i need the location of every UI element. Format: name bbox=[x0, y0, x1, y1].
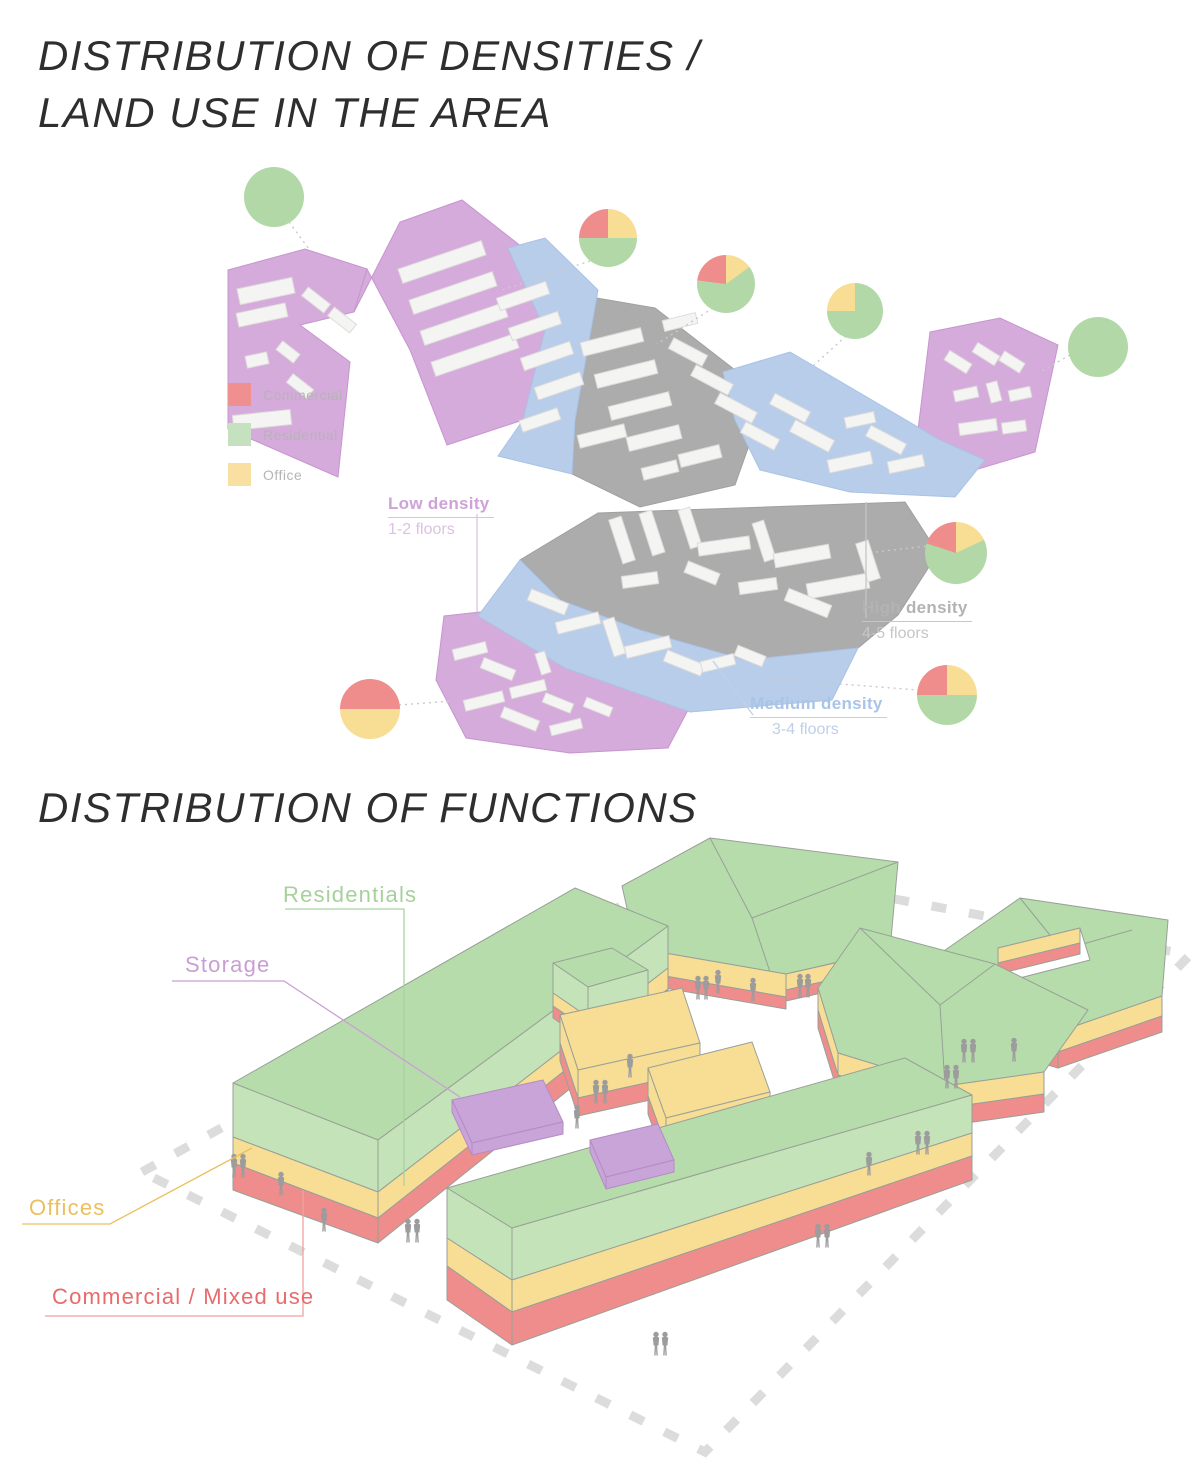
commercial-swatch bbox=[228, 383, 251, 406]
legend-label: Commercial bbox=[263, 387, 343, 403]
land-use-pie-chart-3 bbox=[697, 255, 755, 313]
land-use-pie-chart-4 bbox=[827, 283, 883, 339]
land-use-pie-chart-5 bbox=[1068, 317, 1128, 377]
densities-title-line2: LAND USE IN THE AREA bbox=[38, 85, 701, 142]
storage-label: Storage bbox=[185, 952, 270, 978]
offices-label: Offices bbox=[29, 1195, 105, 1221]
legend-item-residential: Residential bbox=[228, 423, 343, 446]
office-swatch bbox=[228, 463, 251, 486]
high-density-label: High density 4-5 floors bbox=[862, 598, 972, 643]
land-use-pie-chart-1 bbox=[244, 167, 304, 227]
land-use-pie-chart-2 bbox=[579, 209, 637, 267]
low-density-floors: 1-2 floors bbox=[388, 518, 494, 539]
densities-title-line1: DISTRIBUTION OF DENSITIES / bbox=[38, 28, 701, 85]
medium-density-floors: 3-4 floors bbox=[750, 718, 887, 739]
pie-layer bbox=[0, 0, 1198, 1465]
commercial-mixed-use-label: Commercial / Mixed use bbox=[52, 1284, 314, 1310]
legend-item-commercial: Commercial bbox=[228, 383, 343, 406]
page: DISTRIBUTION OF DENSITIES / LAND USE IN … bbox=[0, 0, 1198, 1465]
functions-title: DISTRIBUTION OF FUNCTIONS bbox=[38, 780, 698, 837]
land-use-pie-chart-6 bbox=[925, 522, 987, 584]
legend-label: Office bbox=[263, 467, 302, 483]
high-density-floors: 4-5 floors bbox=[862, 622, 972, 643]
legend-item-office: Office bbox=[228, 463, 343, 486]
land-use-pie-chart-7 bbox=[917, 665, 977, 725]
high-density-name: High density bbox=[862, 598, 972, 622]
medium-density-label: Medium density 3-4 floors bbox=[750, 694, 887, 739]
low-density-label: Low density 1-2 floors bbox=[388, 494, 494, 539]
residential-swatch bbox=[228, 423, 251, 446]
legend-label: Residential bbox=[263, 427, 338, 443]
medium-density-name: Medium density bbox=[750, 694, 887, 718]
low-density-name: Low density bbox=[388, 494, 494, 518]
land-use-pie-chart-8 bbox=[340, 679, 400, 739]
residentials-label: Residentials bbox=[283, 882, 417, 908]
land-use-legend: Commercial Residential Office bbox=[228, 383, 343, 486]
densities-title: DISTRIBUTION OF DENSITIES / LAND USE IN … bbox=[38, 28, 701, 141]
